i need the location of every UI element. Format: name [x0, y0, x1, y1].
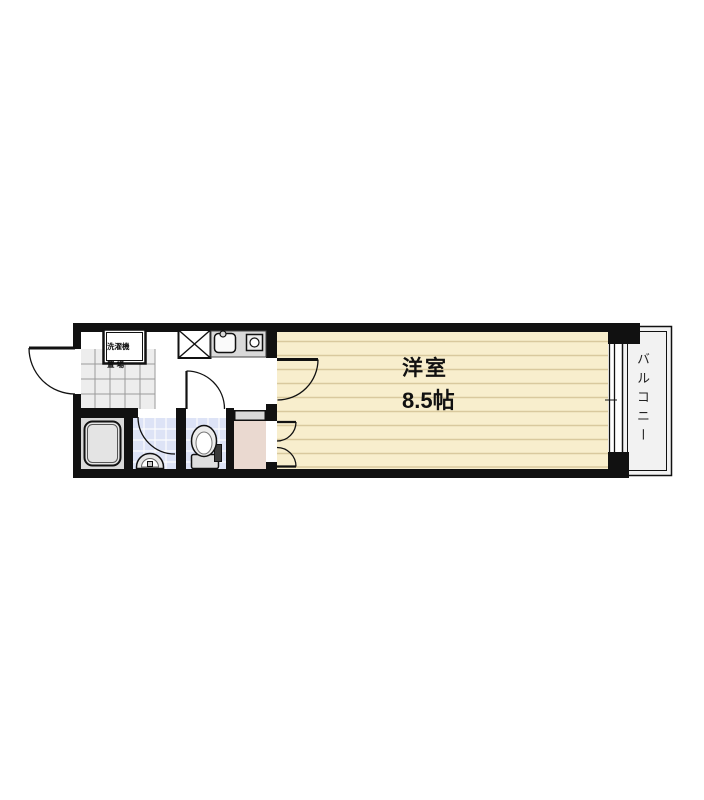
washing-machine-label-line1: 洗濯機	[107, 342, 143, 351]
main-room-label: 洋室 8.5帖	[402, 358, 455, 412]
floorplan-drawing	[0, 0, 704, 800]
floorplan-canvas: 洋室 8.5帖 バルコニー 洗濯機 置 場	[0, 0, 704, 800]
kitchen-sink-icon	[215, 331, 236, 353]
washing-machine-label-line2: 置 場	[107, 360, 143, 369]
main-room-name: 洋室	[402, 358, 455, 379]
bathtub-icon	[85, 422, 121, 466]
entrance-door	[29, 348, 75, 394]
closet	[234, 411, 266, 469]
refrigerator-space	[179, 330, 211, 358]
washing-machine-label: 洗濯機 置 場	[107, 333, 143, 378]
stove-burner-icon	[247, 335, 263, 351]
balcony-label: バルコニー	[636, 352, 652, 452]
main-room-size: 8.5帖	[402, 390, 455, 412]
kitchen-counter	[211, 331, 266, 357]
